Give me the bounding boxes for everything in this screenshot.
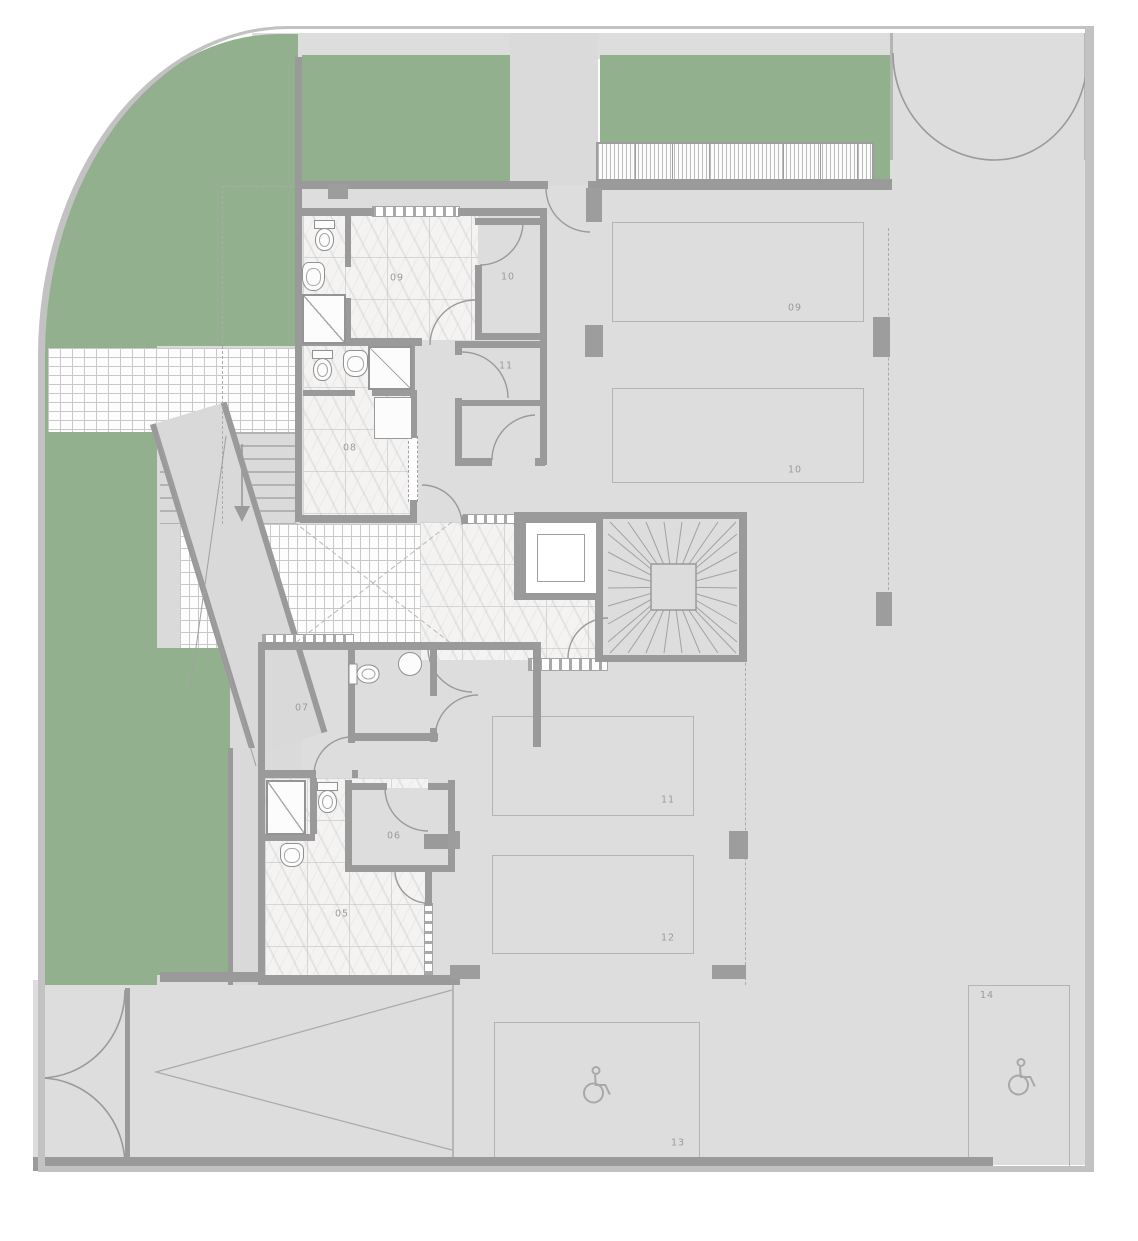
parking-label-09: 09 <box>788 303 802 314</box>
room-label-09: 09 <box>390 273 404 284</box>
parking-label-12: 12 <box>661 933 675 944</box>
parking-label-13: 13 <box>671 1138 685 1149</box>
room-label-05: 05 <box>335 909 349 920</box>
floor-plan: 09 10 11 08 07 06 05 09 10 11 12 13 14 <box>0 0 1138 1241</box>
parking-label-10: 10 <box>788 465 802 476</box>
room-label-07: 07 <box>295 703 309 714</box>
room-label-10: 10 <box>501 272 515 283</box>
room-label-08: 08 <box>343 443 357 454</box>
parking-label-11: 11 <box>661 795 675 806</box>
site-boundary <box>38 26 1094 1172</box>
parking-label-14: 14 <box>980 990 994 1001</box>
room-label-11: 11 <box>499 361 513 372</box>
room-label-06: 06 <box>387 831 401 842</box>
